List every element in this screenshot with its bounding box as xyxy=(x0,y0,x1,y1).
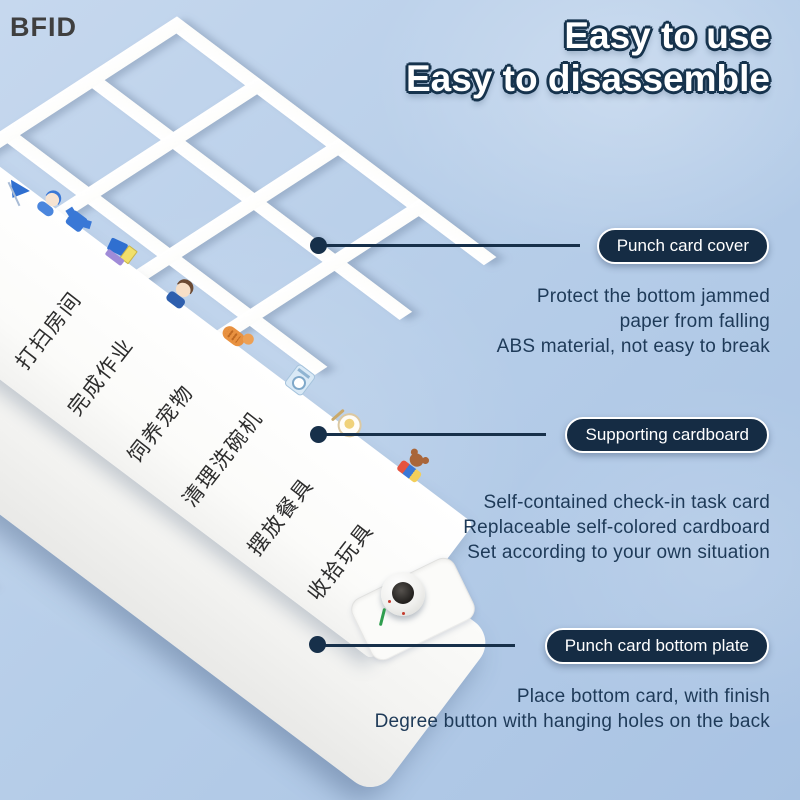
callout-label-bottom-plate: Punch card bottom plate xyxy=(545,628,769,664)
callout-description-cardboard: Self-contained check-in task card Replac… xyxy=(463,490,770,565)
red-indicator-dot xyxy=(388,600,391,603)
title-line-2: Easy to disassemble xyxy=(406,57,770,100)
title-line-1: Easy to use xyxy=(406,14,770,57)
product-infographic: 打扫房间 完成作业 饲养宠物 清理洗碗机 摆放餐具 收拾玩具 BFID Easy… xyxy=(0,0,800,800)
brand-watermark: BFID xyxy=(10,12,77,43)
callout-label-cardboard: Supporting cardboard xyxy=(565,417,769,453)
page-title: Easy to use Easy to disassemble xyxy=(406,14,770,100)
callout-description-cover: Protect the bottom jammed paper from fal… xyxy=(497,284,770,359)
callout-line xyxy=(317,644,515,647)
callout-line xyxy=(318,244,580,247)
callout-line xyxy=(318,433,546,436)
degree-knob-hole-icon xyxy=(392,582,414,604)
callout-description-bottom-plate: Place bottom card, with finish Degree bu… xyxy=(375,684,770,734)
callout-label-cover: Punch card cover xyxy=(597,228,769,264)
red-indicator-dot xyxy=(402,612,405,615)
